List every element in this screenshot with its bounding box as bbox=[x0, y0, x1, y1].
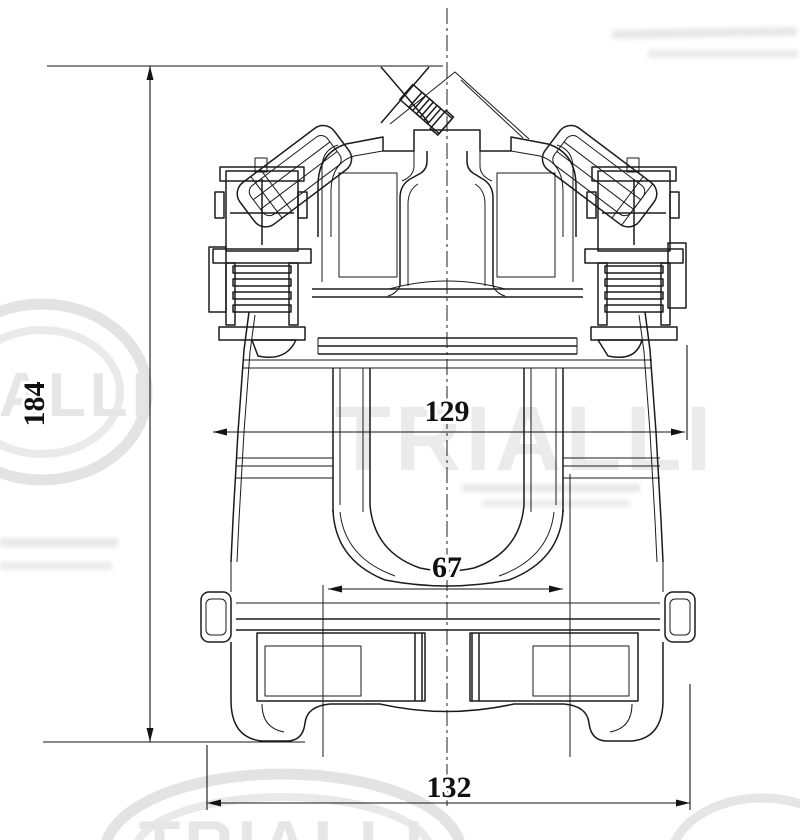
dimension-132: 132 bbox=[207, 684, 690, 810]
watermark-brand-text: TRIALLI bbox=[139, 807, 428, 840]
technical-drawing-page: TRIALLI TRIALLI TRIALLI TRIALLI bbox=[0, 0, 800, 840]
right-mount-boss bbox=[537, 120, 663, 233]
left-hatched-section bbox=[209, 247, 226, 312]
dimension-label-129: 129 bbox=[425, 395, 470, 428]
watermark-center: TRIALLI bbox=[335, 388, 716, 507]
dimension-label-184: 184 bbox=[18, 382, 51, 427]
watermarks: TRIALLI TRIALLI TRIALLI TRIALLI bbox=[0, 27, 800, 840]
bleed-screw bbox=[381, 67, 529, 139]
watermark-bottom-logo: TRIALLI bbox=[105, 774, 461, 840]
left-guide-pin-boot bbox=[213, 158, 311, 357]
watermark-left-logo: TRIALLI bbox=[0, 304, 153, 570]
brake-caliper-drawing: TRIALLI TRIALLI TRIALLI TRIALLI bbox=[0, 0, 800, 840]
dimension-label-67: 67 bbox=[432, 551, 462, 584]
left-side-bracket bbox=[201, 312, 333, 642]
dimension-label-132: 132 bbox=[427, 771, 472, 804]
watermark-top-right bbox=[612, 27, 798, 58]
left-mount-boss bbox=[232, 120, 358, 233]
